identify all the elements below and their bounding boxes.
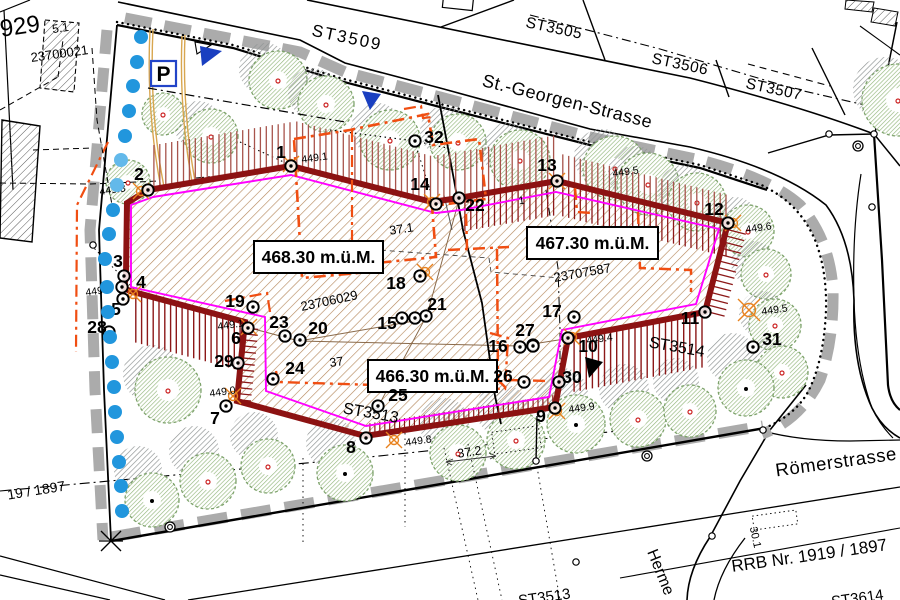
svg-text:21: 21 [427,294,447,314]
svg-text:4: 4 [136,272,146,292]
svg-text:2: 2 [134,164,144,184]
svg-text:18: 18 [386,273,406,293]
svg-text:467.30 m.ü.M.: 467.30 m.ü.M. [536,233,650,253]
svg-text:12: 12 [704,199,724,219]
svg-text:25: 25 [388,385,408,405]
svg-text:9: 9 [536,406,546,426]
svg-text:6: 6 [231,328,241,348]
svg-text:29: 29 [214,351,234,371]
svg-text:32: 32 [424,127,444,147]
svg-text:1: 1 [276,142,286,162]
svg-text:26: 26 [493,366,513,386]
svg-text:14: 14 [410,174,430,194]
svg-text:3: 3 [113,251,123,271]
svg-text:19: 19 [225,291,245,311]
svg-text:24: 24 [285,358,305,378]
svg-text:37: 37 [329,354,345,370]
svg-text:7: 7 [210,408,220,428]
svg-text:10: 10 [578,336,598,356]
svg-text:466.30 m.ü.M.: 466.30 m.ü.M. [376,366,490,386]
svg-text:13: 13 [537,155,557,175]
svg-text:468.30 m.ü.M.: 468.30 m.ü.M. [262,247,376,267]
svg-text:23: 23 [269,312,289,332]
svg-text:5.1: 5.1 [51,20,70,36]
svg-text:31: 31 [762,329,782,349]
svg-text:8: 8 [346,437,356,457]
svg-text:30: 30 [562,367,582,387]
svg-text:11: 11 [681,308,700,328]
svg-text:20: 20 [308,318,328,338]
svg-text:17: 17 [542,301,561,321]
svg-text:P: P [156,63,170,86]
svg-text:16: 16 [488,336,508,356]
svg-text:22: 22 [465,195,485,215]
svg-text:27: 27 [515,320,534,340]
svg-text:15: 15 [377,313,397,333]
svg-text:929: 929 [0,10,42,42]
